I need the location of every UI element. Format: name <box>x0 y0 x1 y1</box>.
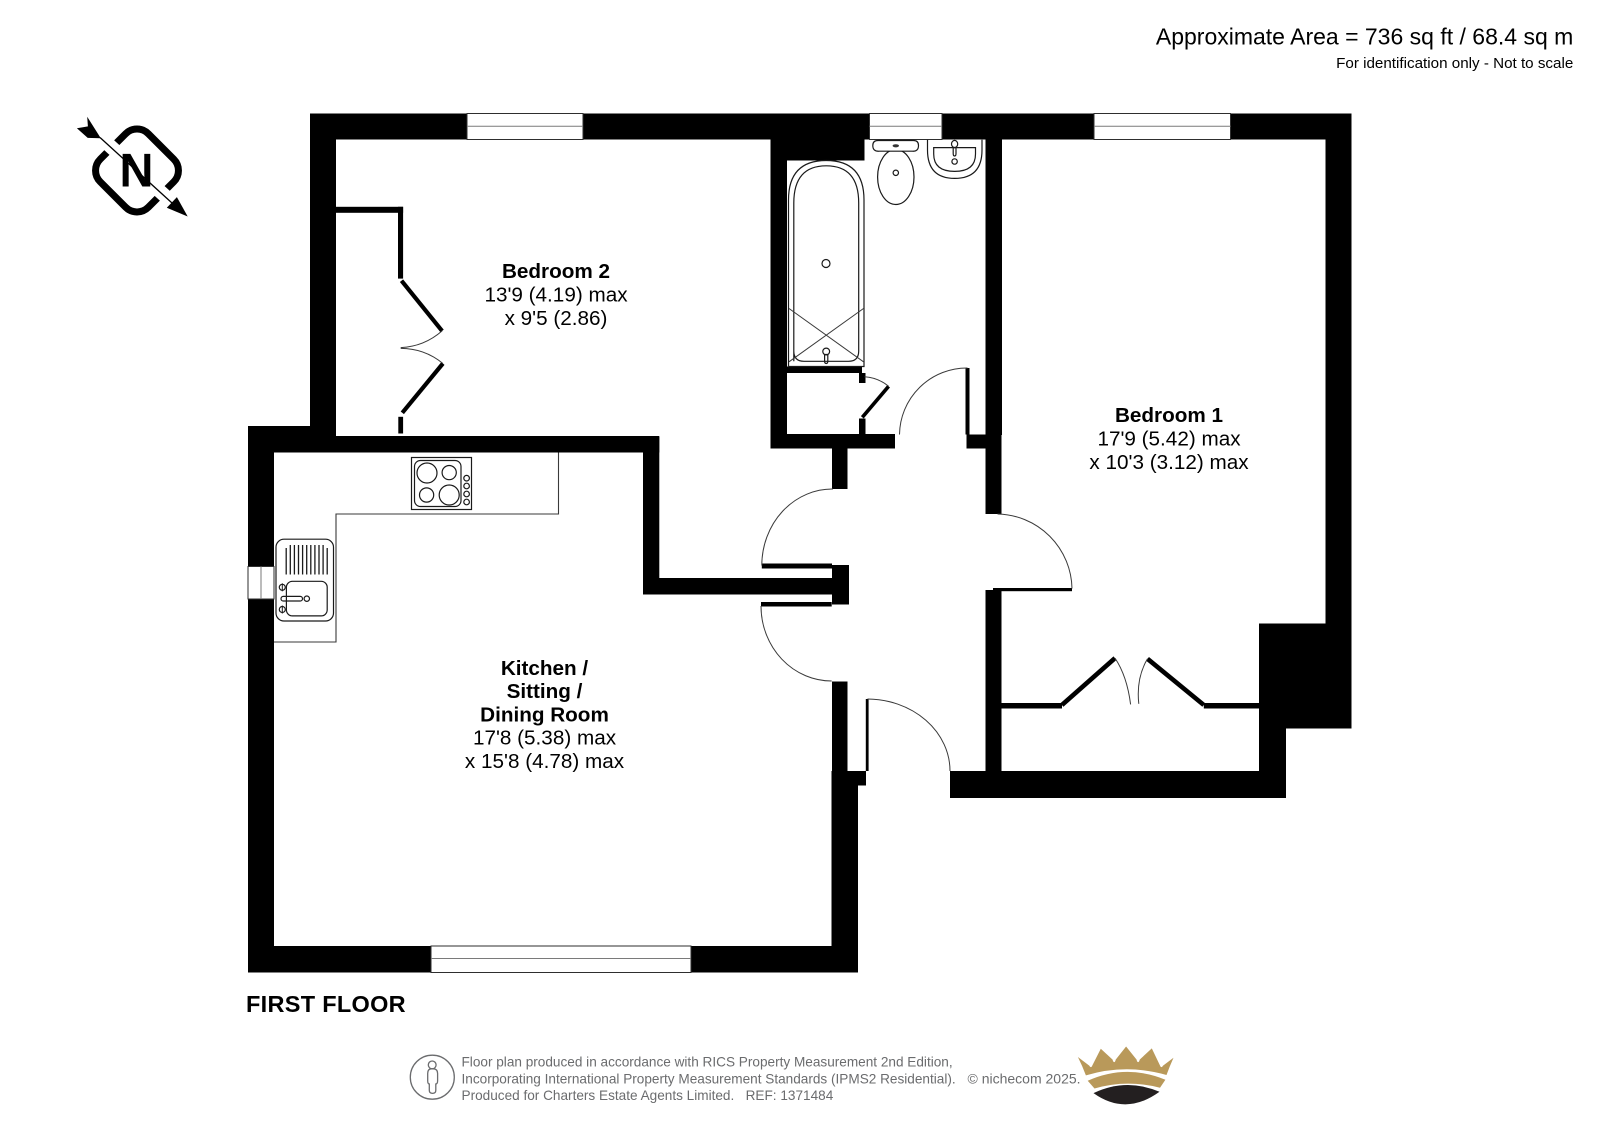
svg-text:© nichecom 2025.: © nichecom 2025. <box>968 1070 1081 1086</box>
svg-text:Approximate Area = 736 sq ft /: Approximate Area = 736 sq ft / 68.4 sq m <box>1156 24 1573 50</box>
svg-text:Incorporating International Pr: Incorporating International Property Mea… <box>462 1071 956 1086</box>
svg-text:x 10'3 (3.12) max: x 10'3 (3.12) max <box>1089 451 1249 474</box>
svg-text:Floor plan produced in accorda: Floor plan produced in accordance with R… <box>462 1055 953 1070</box>
svg-text:N: N <box>120 144 154 197</box>
svg-text:17'9 (5.42) max: 17'9 (5.42) max <box>1097 428 1241 451</box>
svg-text:Bedroom 1: Bedroom 1 <box>1115 404 1223 427</box>
svg-text:Sitting /: Sitting / <box>507 680 583 703</box>
svg-text:x 15'8 (4.78) max: x 15'8 (4.78) max <box>465 750 625 773</box>
svg-text:13'9 (4.19) max: 13'9 (4.19) max <box>484 284 628 307</box>
svg-text:Dining Room: Dining Room <box>480 703 609 726</box>
svg-text:Bedroom 2: Bedroom 2 <box>502 260 610 283</box>
svg-text:Kitchen /: Kitchen / <box>501 657 589 680</box>
svg-text:17'8 (5.38) max: 17'8 (5.38) max <box>473 727 617 750</box>
svg-text:Produced for Charters Estate A: Produced for Charters Estate Agents Limi… <box>462 1088 834 1103</box>
svg-text:FIRST FLOOR: FIRST FLOOR <box>246 991 406 1017</box>
svg-text:x 9'5 (2.86): x 9'5 (2.86) <box>505 307 608 330</box>
svg-text:For identification only - Not: For identification only - Not to scale <box>1336 55 1573 72</box>
